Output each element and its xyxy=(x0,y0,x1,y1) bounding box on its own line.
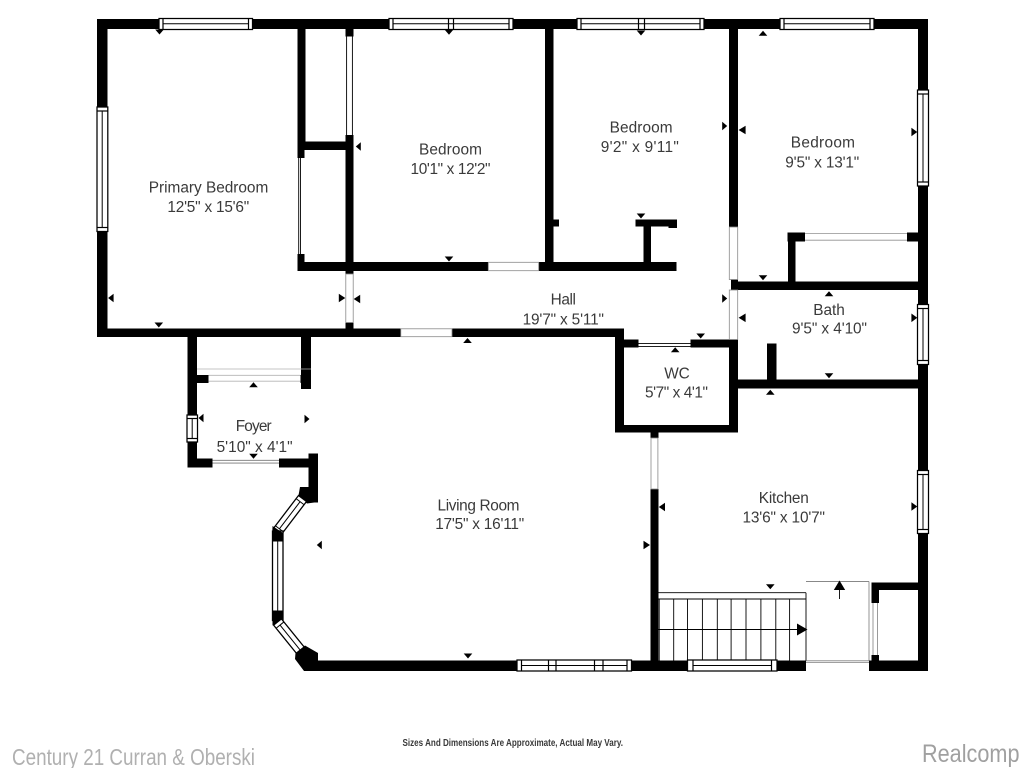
svg-text:Bedroom: Bedroom xyxy=(610,120,673,137)
svg-text:Bedroom: Bedroom xyxy=(419,141,482,158)
svg-text:Realcomp: Realcomp xyxy=(922,740,1020,768)
svg-text:17'5" x 16'11": 17'5" x 16'11" xyxy=(435,516,524,533)
svg-text:9'2" x 9'11": 9'2" x 9'11" xyxy=(601,139,679,156)
svg-text:13'6" x 10'7": 13'6" x 10'7" xyxy=(743,509,826,526)
svg-text:Century 21 Curran & Oberski: Century 21 Curran & Oberski xyxy=(12,744,255,768)
svg-text:10'1" x 12'2": 10'1" x 12'2" xyxy=(411,161,491,178)
svg-text:5'10" x 4'1": 5'10" x 4'1" xyxy=(217,439,293,456)
svg-text:9'5" x 13'1": 9'5" x 13'1" xyxy=(785,154,859,171)
svg-text:19'7" x 5'11": 19'7" x 5'11" xyxy=(523,312,604,329)
svg-text:Bedroom: Bedroom xyxy=(791,135,855,152)
svg-text:Sizes And Dimensions Are Appro: Sizes And Dimensions Are Approximate, Ac… xyxy=(403,738,624,749)
svg-text:WC: WC xyxy=(664,365,689,382)
svg-text:9'5" x 4'10": 9'5" x 4'10" xyxy=(792,321,867,338)
svg-text:5'7" x 4'1": 5'7" x 4'1" xyxy=(645,385,708,402)
svg-text:Foyer: Foyer xyxy=(236,418,272,435)
svg-text:Bath: Bath xyxy=(813,302,845,319)
svg-text:12'5" x 15'6": 12'5" x 15'6" xyxy=(167,199,249,216)
svg-text:Hall: Hall xyxy=(551,292,576,309)
svg-text:Primary Bedroom: Primary Bedroom xyxy=(149,179,268,196)
svg-text:Living Room: Living Room xyxy=(438,498,520,515)
svg-text:Kitchen: Kitchen xyxy=(759,490,809,507)
